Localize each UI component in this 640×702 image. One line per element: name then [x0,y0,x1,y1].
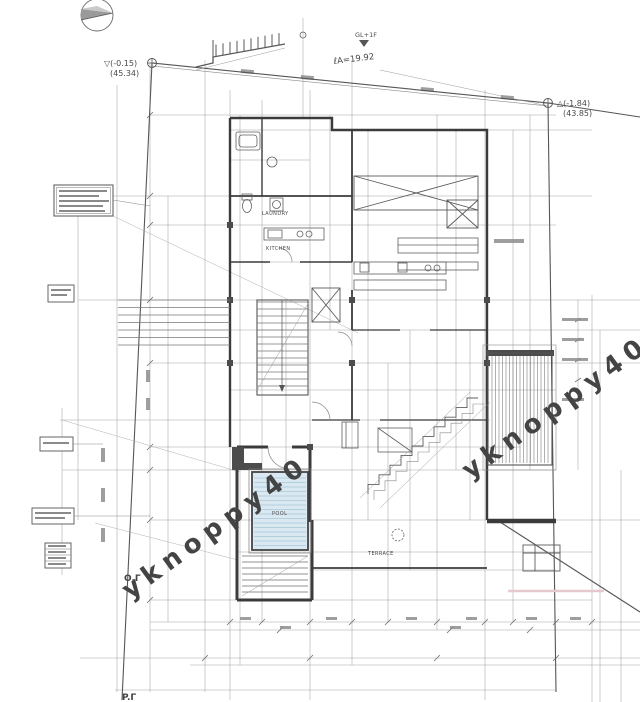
benchmark-right-elevation: (43.85) [563,109,592,118]
room-label-terrace: TERRACE [367,551,394,557]
utility-mark-green: P.Γ [122,693,136,702]
site-plan-canvas: ▽(-0.15) (45.34) △(-1.84) (43.85) ℓA=19.… [0,0,640,702]
benchmark-left: ▽(-0.15) (45.34) [104,59,157,79]
benchmark-right-level: △(-1.84) [557,99,590,108]
left-approach-steps [118,300,230,345]
boundary-length-label: ℓA=19.92 [332,52,375,67]
faint-diagonals [62,216,358,560]
benchmark-left-level: ▽(-0.15) [104,59,137,68]
pool-label: POOL [272,511,287,517]
room-label-kitchen: KITCHEN [266,246,290,252]
dimension-ticks [147,112,595,661]
level-flag-label: GL+1F [355,31,377,39]
property-boundary [122,63,640,700]
north-arrow-icon [81,0,113,31]
benchmark-left-elevation: (45.34) [110,69,139,78]
top-fence [196,32,306,70]
room-label-laundry: LAUNDRY [262,211,289,217]
lower-steps [242,556,308,596]
site-plan-drawing: ▽(-0.15) (45.34) △(-1.84) (43.85) ℓA=19.… [0,0,640,702]
level-flag: GL+1F [355,31,377,47]
stair [256,300,309,395]
note-boxes [32,185,150,568]
